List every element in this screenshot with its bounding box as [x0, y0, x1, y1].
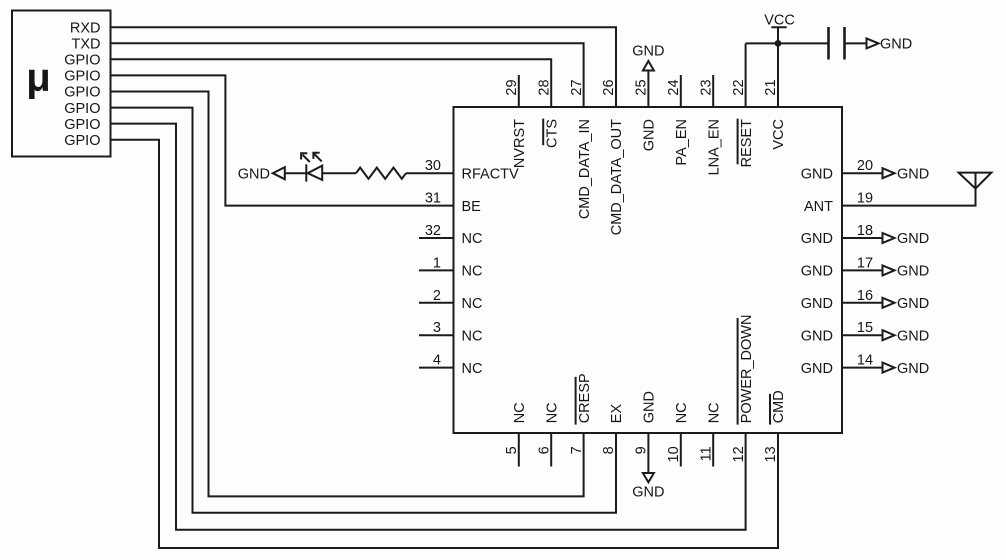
svg-text:NC: NC	[462, 231, 483, 247]
svg-text:TXD: TXD	[72, 37, 101, 53]
svg-text:GND: GND	[801, 166, 833, 182]
svg-text:17: 17	[857, 255, 873, 271]
svg-text:GND: GND	[801, 264, 833, 280]
svg-text:15: 15	[857, 320, 873, 336]
svg-text:GPIO: GPIO	[64, 69, 100, 85]
svg-text:CTS: CTS	[544, 119, 560, 148]
svg-text:21: 21	[763, 79, 779, 95]
svg-text:CMD: CMD	[771, 390, 787, 423]
svg-text:GND: GND	[897, 231, 929, 247]
svg-text:POWER_DOWN: POWER_DOWN	[739, 315, 755, 424]
svg-text:GPIO: GPIO	[64, 133, 100, 149]
svg-text:GPIO: GPIO	[64, 53, 100, 69]
svg-text:GPIO: GPIO	[64, 101, 100, 117]
svg-text:NVRST: NVRST	[512, 119, 528, 168]
svg-text:VCC: VCC	[764, 12, 795, 28]
svg-text:NC: NC	[706, 402, 722, 423]
svg-text:GND: GND	[897, 166, 929, 182]
svg-text:1: 1	[433, 255, 441, 271]
svg-text:4: 4	[433, 353, 441, 369]
svg-text:GND: GND	[801, 231, 833, 247]
svg-text:20: 20	[857, 158, 873, 174]
svg-text:19: 19	[857, 191, 873, 207]
svg-text:GND: GND	[897, 264, 929, 280]
svg-text:5: 5	[504, 446, 520, 454]
svg-text:13: 13	[763, 446, 779, 462]
svg-text:RXD: RXD	[70, 20, 101, 36]
svg-text:ANT: ANT	[804, 199, 833, 215]
svg-text:9: 9	[634, 446, 650, 454]
svg-text:10: 10	[666, 446, 682, 462]
svg-text:NC: NC	[462, 361, 483, 377]
svg-text:RESET: RESET	[739, 119, 755, 167]
svg-text:PA_EN: PA_EN	[674, 119, 690, 165]
svg-text:31: 31	[425, 191, 441, 207]
svg-text:32: 32	[425, 223, 441, 239]
svg-text:2: 2	[433, 288, 441, 304]
svg-text:VCC: VCC	[771, 119, 787, 150]
svg-text:GPIO: GPIO	[64, 85, 100, 101]
svg-text:GND: GND	[632, 485, 664, 501]
svg-text:29: 29	[504, 79, 520, 95]
svg-text:BE: BE	[462, 199, 482, 215]
svg-text:GND: GND	[897, 296, 929, 312]
svg-text:EX: EX	[609, 404, 625, 424]
svg-text:NC: NC	[462, 328, 483, 344]
svg-text:7: 7	[569, 446, 585, 454]
svg-text:12: 12	[731, 446, 747, 462]
svg-text:25: 25	[634, 79, 650, 95]
svg-text:22: 22	[731, 79, 747, 95]
svg-text:NC: NC	[674, 402, 690, 423]
svg-text:GPIO: GPIO	[64, 117, 100, 133]
svg-text:18: 18	[857, 223, 873, 239]
svg-text:NC: NC	[462, 296, 483, 312]
svg-text:NC: NC	[544, 402, 560, 423]
svg-text:8: 8	[601, 446, 617, 454]
svg-text:CMD_DATA_OUT: CMD_DATA_OUT	[609, 119, 625, 235]
svg-text:GND: GND	[801, 361, 833, 377]
svg-text:26: 26	[601, 79, 617, 95]
svg-text:GND: GND	[897, 328, 929, 344]
svg-text:GND: GND	[897, 361, 929, 377]
svg-text:3: 3	[433, 320, 441, 336]
svg-text:30: 30	[425, 158, 441, 174]
svg-text:CRESP: CRESP	[577, 373, 593, 423]
svg-text:24: 24	[666, 79, 682, 95]
svg-text:NC: NC	[462, 264, 483, 280]
svg-text:23: 23	[698, 79, 714, 95]
svg-text:CMD_DATA_IN: CMD_DATA_IN	[577, 119, 593, 219]
svg-text:14: 14	[857, 353, 873, 369]
svg-text:11: 11	[698, 446, 714, 461]
svg-text:16: 16	[857, 288, 873, 304]
svg-text:μ: μ	[26, 56, 50, 100]
svg-text:RFACTV: RFACTV	[462, 166, 520, 182]
svg-text:NC: NC	[512, 402, 528, 423]
svg-text:GND: GND	[801, 328, 833, 344]
svg-text:GND: GND	[880, 37, 912, 53]
svg-text:6: 6	[536, 446, 552, 454]
svg-text:GND: GND	[642, 391, 658, 423]
svg-text:LNA_EN: LNA_EN	[706, 119, 722, 175]
svg-text:27: 27	[569, 79, 585, 95]
svg-text:GND: GND	[238, 166, 270, 182]
svg-text:GND: GND	[801, 296, 833, 312]
svg-text:28: 28	[536, 79, 552, 95]
svg-text:GND: GND	[632, 43, 664, 59]
svg-text:GND: GND	[642, 119, 658, 151]
